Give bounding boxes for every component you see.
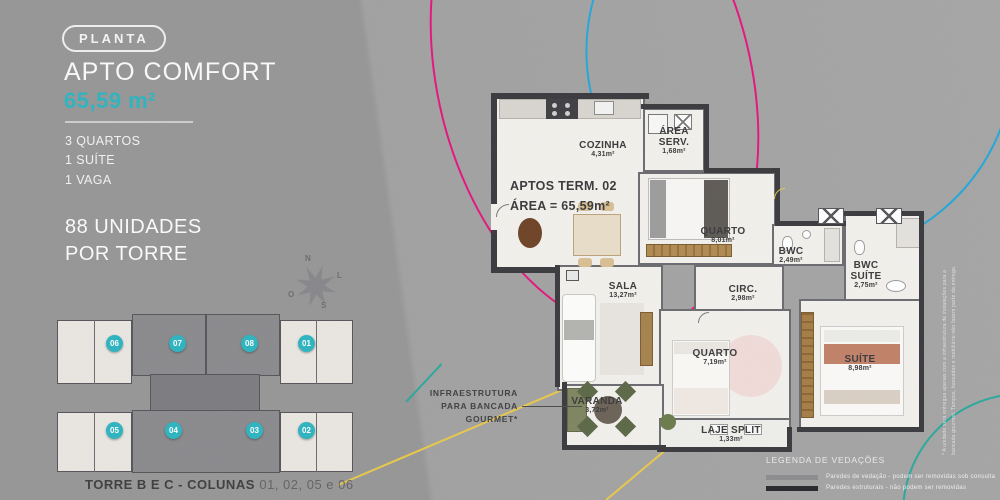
label-laje-split: LAJE SPLIT 1,33m² [688, 425, 774, 444]
room-name: BWC [779, 246, 804, 257]
room-name: LAJE SPLIT [701, 425, 761, 436]
feature-parking: 1 VAGA [65, 171, 140, 190]
legend-item: Paredes estruturais - não podem ser remo… [766, 485, 995, 491]
unit-circle-06: 06 [106, 335, 123, 352]
kitchen-sink [594, 101, 614, 115]
legend-swatch-partition [766, 475, 818, 480]
wall-segment [797, 427, 924, 432]
feature-bedrooms: 3 QUARTOS [65, 132, 140, 151]
legend-title: LEGENDA DE VEDAÇÕES [766, 455, 995, 465]
wardrobe-bedroom-1 [646, 244, 732, 257]
wall-segment [491, 93, 649, 99]
wall-segment [562, 445, 666, 450]
room-area: 13,27m² [588, 292, 658, 300]
room-area: 1,33m² [688, 436, 774, 444]
room-name: ÁREA SERV. [659, 126, 689, 148]
feature-list: 3 QUARTOS 1 SUÍTE 1 VAGA [65, 132, 140, 190]
dining-chair [578, 258, 592, 267]
callout-pointer-line [522, 406, 582, 407]
plant [660, 414, 676, 430]
room-area: 2,75m² [840, 282, 892, 290]
unit-line1: APTOS TERM. 02 [510, 176, 640, 196]
wall-segment [555, 265, 560, 387]
label-kitchen: COZINHA 4,31m² [566, 140, 640, 159]
label-living: SALA 13,27m² [588, 281, 658, 300]
callout-line3: GOURMET* [418, 413, 518, 426]
divider-line [65, 121, 193, 123]
ventilation-shaft [876, 208, 902, 224]
room-area: 2,98m² [718, 295, 768, 303]
basin [802, 230, 811, 239]
unit-line2: ÁREA = 65,59m² [510, 196, 640, 216]
legend-swatch-structural [766, 486, 818, 491]
label-circ: CIRC. 2,98m² [718, 284, 768, 303]
legend-label: Paredes de vedação - podem ser removidas… [826, 474, 995, 480]
shower [824, 228, 840, 262]
apartment-area: 65,59 m² [64, 88, 156, 114]
wall-segment [491, 267, 560, 273]
ventilation-shaft [818, 208, 844, 224]
compass-east: L [337, 271, 342, 280]
callout-line2: PARA BANCADA [418, 400, 518, 413]
feature-suite: 1 SUÍTE [65, 151, 140, 170]
units-per-tower: 88 UNIDADES POR TORRE [65, 214, 202, 268]
page-title: APTO COMFORT [64, 58, 276, 87]
wardrobe-suite [801, 312, 814, 418]
keyplan-caption: TORRE B E C - COLUNAS 01, 02, 05 e 06 [85, 476, 354, 494]
room-area: 7,19m² [680, 359, 750, 367]
dining-table [573, 214, 621, 256]
gourmet-callout: INFRAESTRUTURA PARA BANCADA GOURMET* [418, 387, 518, 425]
room-area: 8,01m² [688, 237, 758, 245]
toilet-suite [854, 240, 865, 255]
compass-north: N [305, 254, 311, 263]
bed-2-fold [674, 388, 728, 414]
footnote-line2: bancada gourmet. Tampos, bancadas e mobi… [950, 165, 959, 455]
units-line1: 88 UNIDADES [65, 214, 202, 241]
room-name: QUARTO [701, 226, 746, 237]
keyplan-partition [94, 320, 95, 384]
living-rug [600, 303, 644, 375]
bed-suite-runner [824, 390, 900, 404]
tower-keyplan: 06 07 08 01 05 04 03 02 [55, 312, 355, 463]
label-bwc-suite: BWC SUÍTE 2,75m² [840, 260, 892, 290]
keyplan-partition [316, 320, 317, 384]
keyplan-unit-block [132, 410, 280, 473]
tv-panel [640, 312, 653, 366]
stove-burners [552, 103, 557, 108]
planta-badge: PLANTA [62, 25, 166, 52]
room-area: 3,72m² [568, 407, 626, 415]
wall-segment [704, 168, 780, 173]
label-service: ÁREA SERV. 1,68m² [648, 126, 700, 156]
room-name: COZINHA [579, 140, 627, 151]
compass-south: S [321, 301, 326, 310]
unit-circle-08: 08 [241, 335, 258, 352]
compass-rose-icon [290, 260, 343, 313]
callout-line1: INFRAESTRUTURA [418, 387, 518, 400]
dining-chair [600, 258, 614, 267]
keyplan-partition [316, 412, 317, 472]
bed-pillows [650, 180, 666, 238]
wall-segment [562, 382, 567, 450]
label-bedroom-2: QUARTO 7,19m² [680, 348, 750, 367]
units-line2: POR TORRE [65, 241, 202, 268]
wall-segment [919, 211, 924, 432]
wall-frame [566, 270, 579, 281]
label-bwc: BWC 2,49m² [766, 246, 816, 265]
compass-west: O [288, 290, 294, 299]
legend-label: Paredes estruturais - não podem ser remo… [826, 485, 966, 491]
unit-circle-01: 01 [298, 335, 315, 352]
floorplan: APTOS TERM. 02 ÁREA = 65,59m² COZINHA 4,… [488, 88, 935, 460]
footnote-vertical: * A unidade será entregue apenas com a i… [941, 165, 959, 455]
legend-item: Paredes de vedação - podem ser removidas… [766, 474, 995, 480]
room-area: 8,98m² [828, 365, 892, 373]
room-name: CIRC. [729, 284, 758, 295]
label-bedroom-1: QUARTO 8,01m² [688, 226, 758, 245]
room-name: QUARTO [693, 348, 738, 359]
unit-identifier: APTOS TERM. 02 ÁREA = 65,59m² [510, 176, 640, 216]
entry-console [518, 218, 542, 248]
footnote-line1: * A unidade será entregue apenas com a i… [941, 165, 950, 455]
door-opening [491, 204, 497, 230]
wall-segment [704, 104, 709, 173]
room-name: BWC SUÍTE [851, 260, 882, 282]
room-area: 2,49m² [766, 257, 816, 265]
wall-segment [641, 104, 709, 109]
room-name: SALA [609, 281, 637, 292]
sofa-blanket [564, 320, 594, 340]
wall-segment [657, 447, 792, 452]
unit-circle-07: 07 [169, 335, 186, 352]
keyplan-partition [94, 412, 95, 472]
unit-circle-04: 04 [165, 422, 182, 439]
unit-circle-05: 05 [106, 422, 123, 439]
wall-segment [491, 93, 497, 273]
room-area: 4,31m² [566, 151, 640, 159]
caption-bold: TORRE B E C - COLUNAS [85, 477, 255, 492]
caption-rest: 01, 02, 05 e 06 [259, 477, 353, 492]
unit-circle-03: 03 [246, 422, 263, 439]
unit-circle-02: 02 [298, 422, 315, 439]
legend: LEGENDA DE VEDAÇÕES Paredes de vedação -… [766, 455, 995, 491]
planta-slide: PLANTA APTO COMFORT 65,59 m² 3 QUARTOS 1… [0, 0, 1000, 500]
bed-suite-pillows [824, 330, 900, 342]
label-suite: SUÍTE 8,98m² [828, 354, 892, 373]
stove [546, 99, 578, 119]
room-name: SUÍTE [845, 354, 876, 365]
room-area: 1,68m² [648, 148, 700, 156]
